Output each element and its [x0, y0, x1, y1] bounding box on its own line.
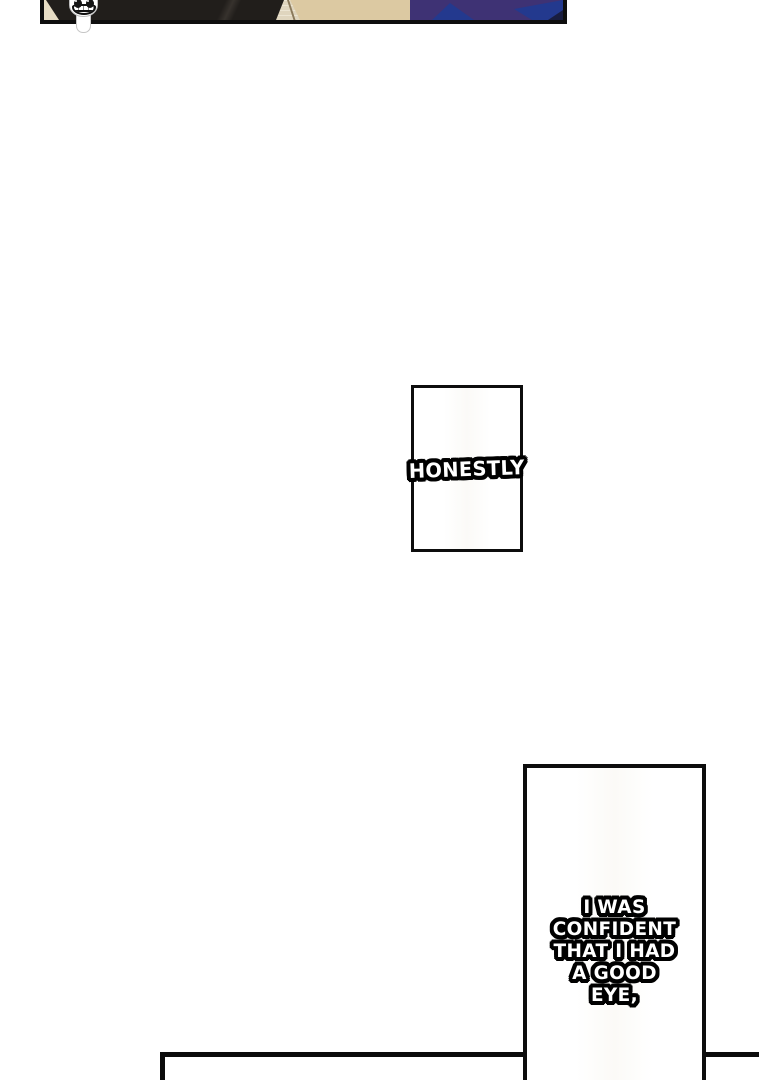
caption-line: THAT I HAD — [530, 940, 700, 962]
caption-box-honestly: HONESTLY — [411, 385, 523, 552]
eye-glint — [87, 0, 89, 2]
caption-line: CONFIDENT — [530, 918, 700, 940]
hair-sheen — [194, 0, 264, 20]
caption-text-honestly: HONESTLY — [409, 454, 526, 482]
caption-line: I WAS — [530, 896, 700, 918]
eye-glint — [75, 0, 77, 2]
mascot-grin-line — [74, 10, 94, 12]
top-panel — [40, 0, 567, 24]
caption-line: A GOOD — [530, 962, 700, 984]
caption-text-confident: I WAS CONFIDENT THAT I HAD A GOOD EYE, — [527, 896, 702, 1006]
comic-page: HONESTLY I WAS CONFIDENT THAT I HAD A GO… — [0, 0, 759, 1080]
caption-box-confident: I WAS CONFIDENT THAT I HAD A GOOD EYE, — [523, 764, 706, 1080]
caption-line: EYE, — [530, 984, 700, 1006]
